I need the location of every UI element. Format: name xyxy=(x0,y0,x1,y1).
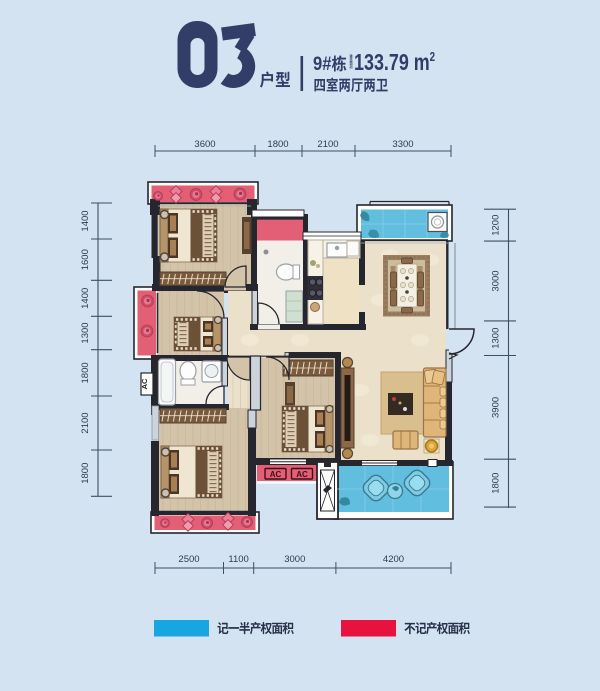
svg-text:3600: 3600 xyxy=(194,139,215,150)
svg-text:AC: AC xyxy=(296,470,308,479)
svg-text:1800: 1800 xyxy=(80,362,91,383)
svg-text:1200: 1200 xyxy=(491,215,502,236)
svg-text:AC: AC xyxy=(270,470,282,479)
svg-text:2: 2 xyxy=(430,51,435,64)
svg-text:1300: 1300 xyxy=(80,322,91,343)
svg-text:1800: 1800 xyxy=(80,463,91,484)
svg-text:3000: 3000 xyxy=(284,554,305,565)
svg-text:3000: 3000 xyxy=(491,270,502,291)
svg-text:9#: 9# xyxy=(313,53,331,75)
svg-text:4200: 4200 xyxy=(383,554,404,565)
svg-text:133.79 m: 133.79 m xyxy=(354,50,430,76)
svg-text:3900: 3900 xyxy=(491,397,502,418)
svg-text:1600: 1600 xyxy=(80,249,91,270)
svg-text:1800: 1800 xyxy=(491,473,502,494)
svg-text:1800: 1800 xyxy=(267,139,288,150)
svg-text:1400: 1400 xyxy=(80,288,91,309)
svg-text:2100: 2100 xyxy=(80,412,91,433)
svg-text:AC: AC xyxy=(140,378,149,389)
svg-text:2500: 2500 xyxy=(178,554,199,565)
svg-text:3300: 3300 xyxy=(392,139,413,150)
svg-text:2100: 2100 xyxy=(317,139,338,150)
svg-text:1400: 1400 xyxy=(80,210,91,231)
svg-text:1300: 1300 xyxy=(491,328,502,349)
svg-text:1100: 1100 xyxy=(228,554,248,565)
